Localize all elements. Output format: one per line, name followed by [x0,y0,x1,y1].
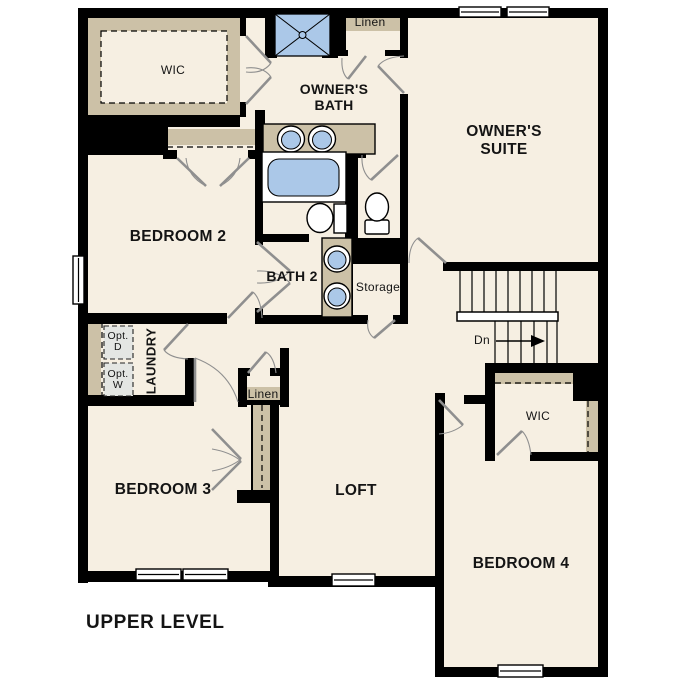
stair-handrail [457,312,558,321]
label-optional-washer: Opt. W [107,369,128,391]
room-label-loft: LOFT [335,482,377,500]
room-label-wic-right: WIC [526,410,550,424]
room-label-bedroom-2: BEDROOM 2 [130,228,227,246]
room-label-bath-2: BATH 2 [266,268,317,284]
room-label-wic-top: WIC [161,64,185,78]
room-label-owners-bath: OWNER'S BATH [300,81,368,113]
room-label-owners-suite: OWNER'S SUITE [466,123,542,159]
shower-fixture [275,14,330,56]
room-label-linen-mid: Linen [248,388,279,402]
window [136,569,181,580]
window [332,574,375,586]
window [459,7,501,17]
label-optional-dryer: Opt. D [107,331,128,353]
double-vanity-fixture [263,124,375,154]
window [183,569,228,580]
room-label-storage: Storage [356,281,400,295]
window [73,256,84,304]
room-label-bedroom-3: BEDROOM 3 [115,481,212,499]
stairs-down-label: Dn [474,334,490,348]
window [507,7,549,17]
bathtub-fixture [262,152,346,202]
floor-plan-canvas: WIC Linen OWNER'S BATH OWNER'S SUITE BED… [0,0,687,687]
toilet-fixture [365,193,389,234]
plan-title: UPPER LEVEL [86,612,225,634]
room-label-bedroom-4: BEDROOM 4 [473,555,570,573]
window [498,665,543,677]
vanity-fixture [322,238,352,317]
toilet-fixture [307,204,347,234]
room-label-laundry: LAUNDRY [145,328,160,395]
room-label-linen-top: Linen [355,16,386,30]
